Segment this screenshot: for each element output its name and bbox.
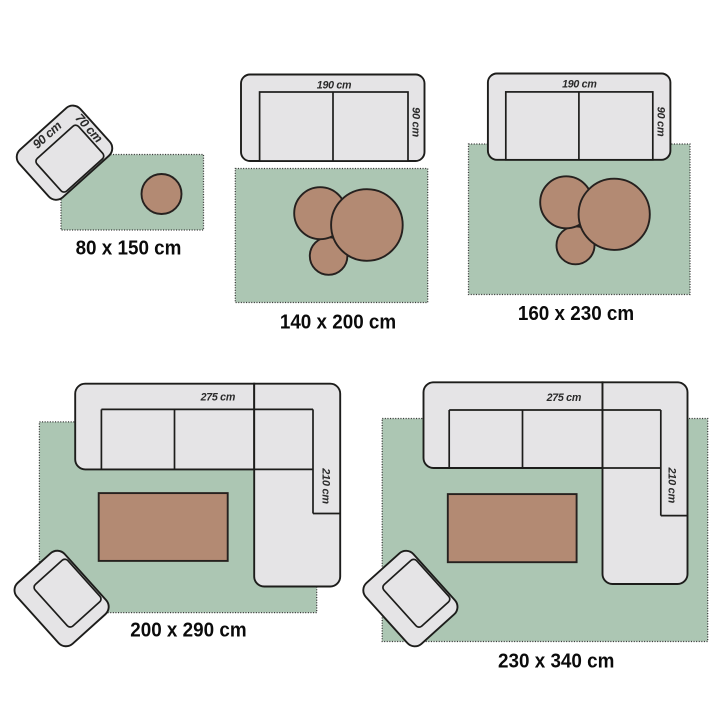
svg-text:90 cm: 90 cm — [409, 107, 421, 137]
svg-text:190 cm: 190 cm — [317, 80, 352, 92]
svg-text:230 x 340 cm: 230 x 340 cm — [498, 650, 614, 673]
svg-text:275 cm: 275 cm — [200, 391, 236, 403]
svg-text:90 cm: 90 cm — [655, 107, 667, 137]
svg-text:200 x 290 cm: 200 x 290 cm — [130, 619, 246, 642]
svg-text:140 x 200 cm: 140 x 200 cm — [280, 311, 396, 334]
svg-text:160 x 230 cm: 160 x 230 cm — [518, 302, 634, 325]
svg-text:275 cm: 275 cm — [546, 392, 582, 404]
svg-text:210 cm: 210 cm — [320, 467, 332, 504]
svg-text:210 cm: 210 cm — [666, 466, 678, 503]
svg-text:80 x 150 cm: 80 x 150 cm — [76, 237, 182, 260]
svg-text:190 cm: 190 cm — [562, 78, 597, 90]
